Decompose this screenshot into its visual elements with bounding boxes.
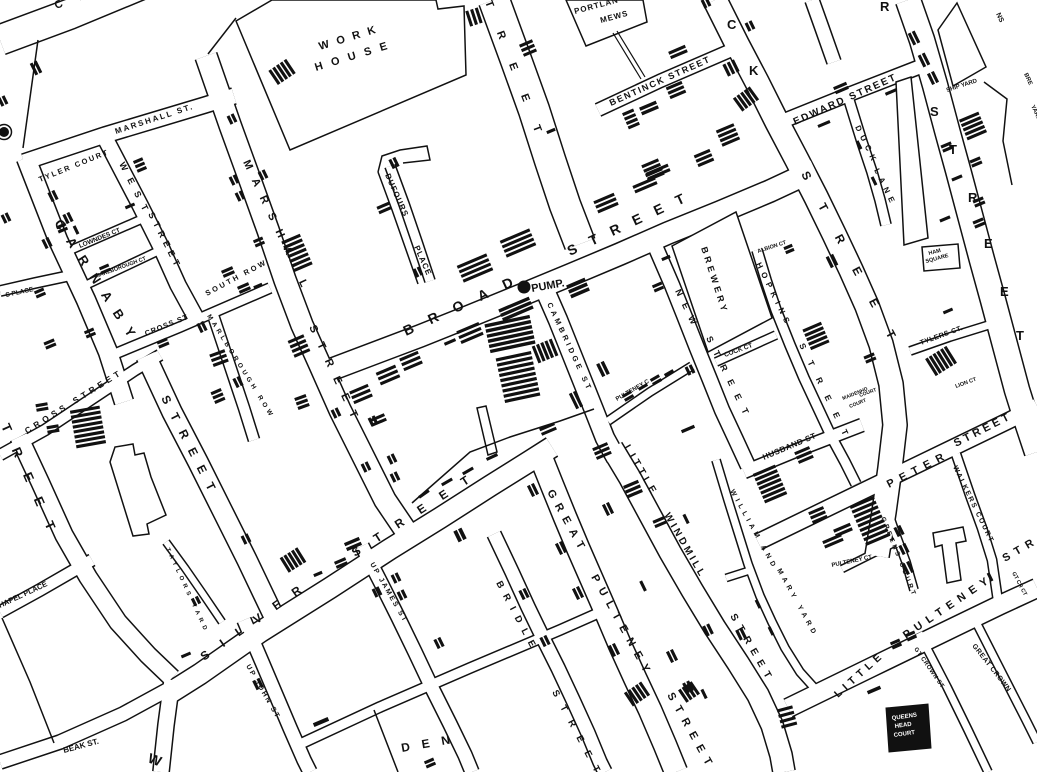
svg-text:S: S (930, 104, 939, 119)
svg-text:E: E (1000, 284, 1009, 299)
svg-text:R: R (880, 0, 890, 14)
svg-text:K: K (749, 63, 759, 78)
svg-text:R: R (968, 190, 978, 205)
svg-text:T: T (949, 142, 957, 157)
svg-text:E: E (984, 236, 993, 251)
svg-text:C: C (727, 17, 737, 32)
svg-text:T: T (1016, 328, 1024, 343)
